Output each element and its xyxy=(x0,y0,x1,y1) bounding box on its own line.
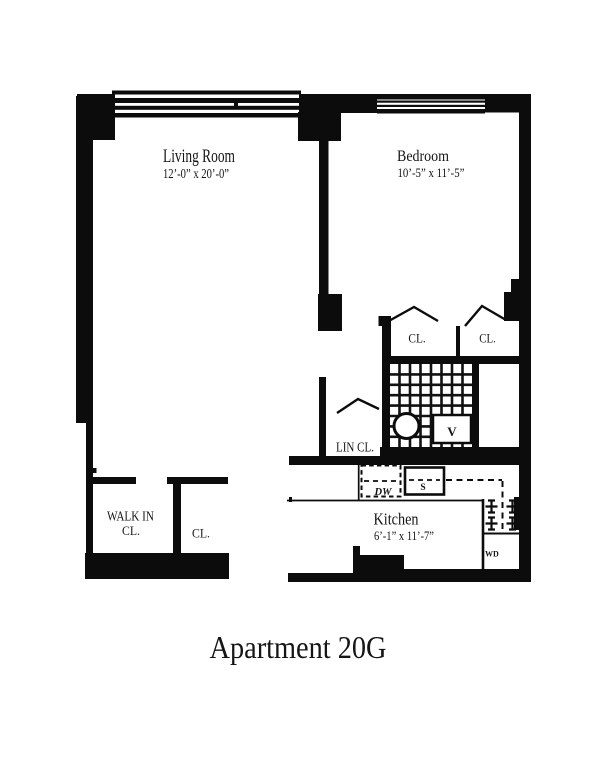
svg-text:CL.: CL. xyxy=(192,526,210,541)
svg-text:WD: WD xyxy=(485,550,499,559)
svg-text:Apartment 20G: Apartment 20G xyxy=(210,629,387,665)
svg-text:V: V xyxy=(447,424,457,439)
svg-text:CL.: CL. xyxy=(122,523,140,538)
svg-text:Bedroom: Bedroom xyxy=(397,148,449,165)
svg-text:LIN CL.: LIN CL. xyxy=(336,440,374,455)
svg-text:CL.: CL. xyxy=(479,331,496,346)
svg-text:Kitchen: Kitchen xyxy=(374,510,419,529)
svg-text:DW: DW xyxy=(374,487,393,498)
svg-text:10’-5” x 11’-5”: 10’-5” x 11’-5” xyxy=(398,166,465,180)
svg-text:S: S xyxy=(420,483,425,493)
svg-text:CL.: CL. xyxy=(408,331,425,346)
svg-text:6’-1” x 11’-7”: 6’-1” x 11’-7” xyxy=(374,529,434,543)
svg-text:Living Room: Living Room xyxy=(163,146,235,167)
svg-text:12’-0” x 20’-0”: 12’-0” x 20’-0” xyxy=(163,166,229,181)
